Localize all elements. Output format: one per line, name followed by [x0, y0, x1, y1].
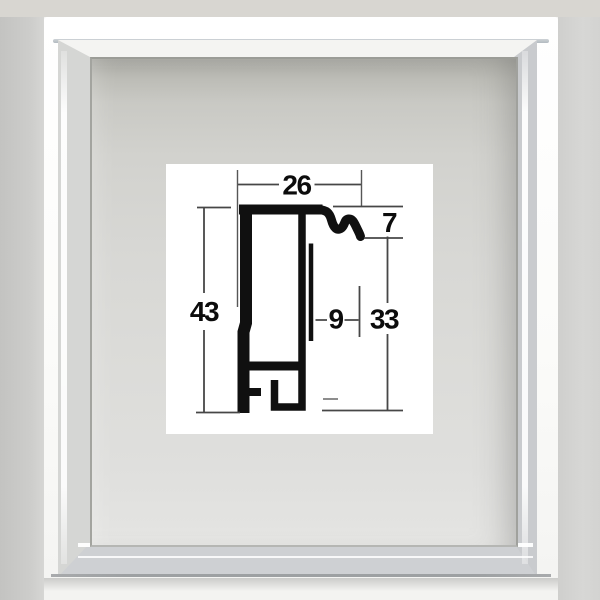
- dimension-33-label: 33: [370, 304, 399, 335]
- frame-shadow: [44, 578, 558, 591]
- frame-left-highlight: [61, 51, 67, 564]
- profile-diagram: 26 43 7 33 9: [166, 164, 433, 434]
- backdrop-top: [0, 0, 600, 17]
- dimension-9: 9: [316, 286, 360, 337]
- frame-bottom-edge: [51, 574, 551, 577]
- profile-left-wall: [244, 205, 247, 414]
- backdrop-right: [558, 0, 600, 600]
- dimension-43: 43: [190, 208, 240, 413]
- profile-inner-channel: [275, 213, 303, 407]
- profile-front-hook: [318, 210, 361, 237]
- dimension-43-label: 43: [190, 296, 219, 327]
- frame-bottom-highlight-2: [78, 556, 533, 558]
- dimension-26-label: 26: [282, 170, 311, 201]
- dimension-7-label: 7: [382, 207, 397, 238]
- backdrop-left: [0, 0, 44, 600]
- product-photo: 26 43 7 33 9: [0, 0, 600, 600]
- dimension-9-label: 9: [328, 304, 343, 335]
- frame-right-highlight: [522, 51, 528, 564]
- profile-diagram-card: 26 43 7 33 9: [166, 164, 433, 434]
